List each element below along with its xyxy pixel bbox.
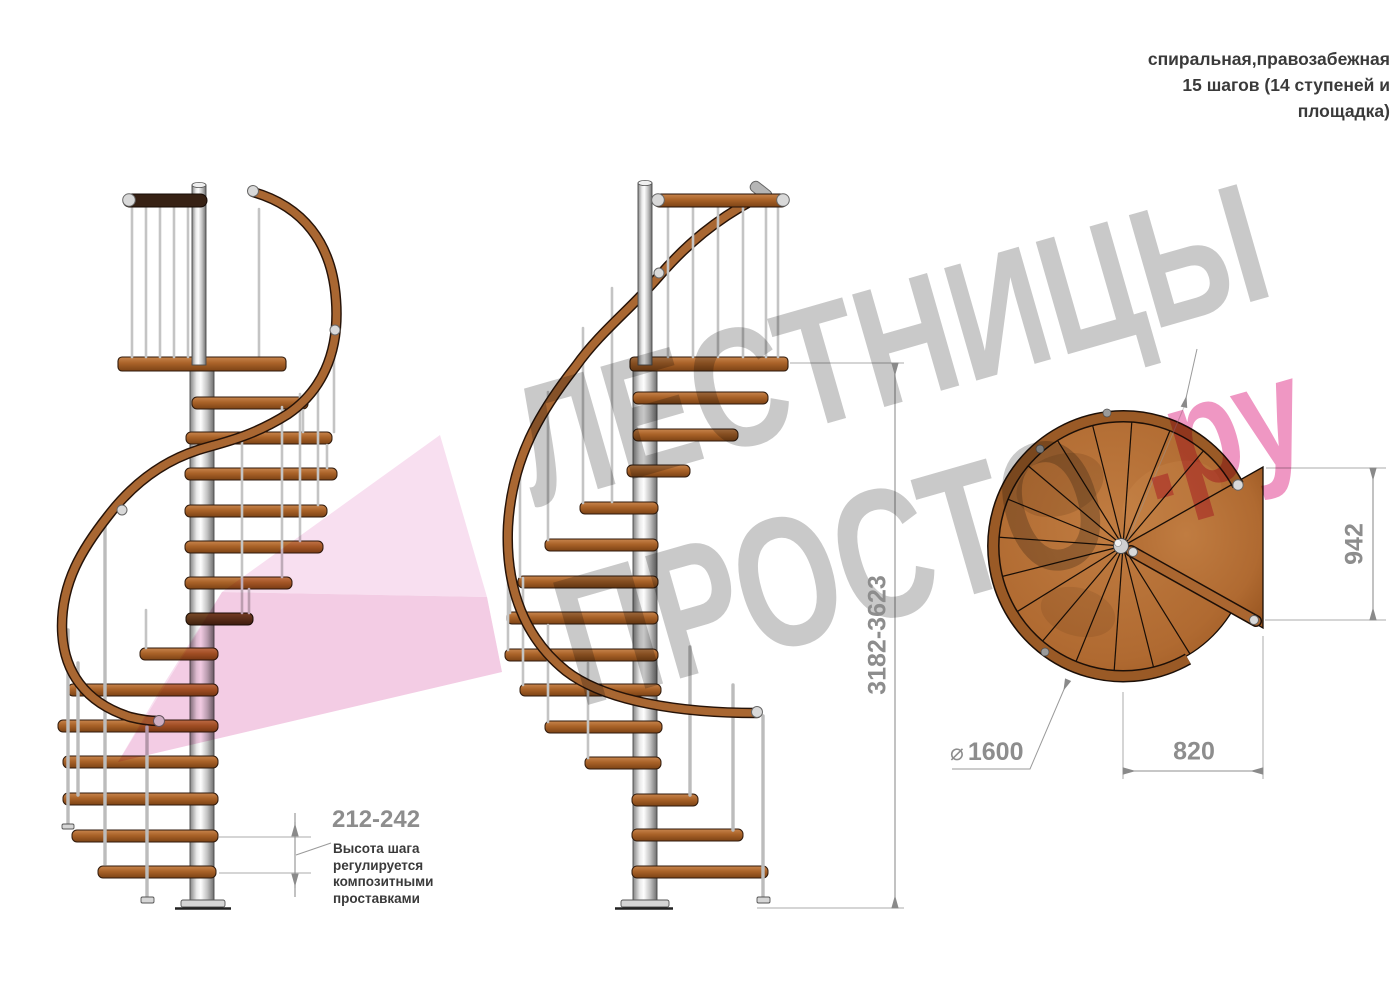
- diameter-symbol: ⌀: [950, 739, 964, 765]
- title-block: спиральная,правозабежная 15 шагов (14 ст…: [1030, 46, 1390, 124]
- drawing-page: ЛЕСТНИЦЫ ПРОСТО .ру спиральная,правозабе…: [0, 0, 1400, 1000]
- note-line-1: Высота шага: [333, 841, 433, 858]
- total-height-label: 3182-3623: [864, 575, 893, 695]
- step-height-label: 212-242: [332, 806, 420, 834]
- title-line-3: площадка): [1030, 98, 1390, 124]
- note-line-3: композитными: [333, 874, 433, 891]
- note-line-4: проставками: [333, 891, 433, 908]
- title-line-2: 15 шагов (14 ступеней и: [1030, 72, 1390, 98]
- title-line-1: спиральная,правозабежная: [1030, 46, 1390, 72]
- step-height-note: Высота шага регулируется композитными пр…: [333, 841, 433, 907]
- note-line-2: регулируется: [333, 858, 433, 875]
- diameter-value: 1600: [968, 738, 1024, 766]
- landing-depth-label: 942: [1341, 523, 1370, 565]
- center-to-edge-label: 820: [1173, 738, 1215, 767]
- diameter-label: ⌀1600: [950, 738, 1023, 767]
